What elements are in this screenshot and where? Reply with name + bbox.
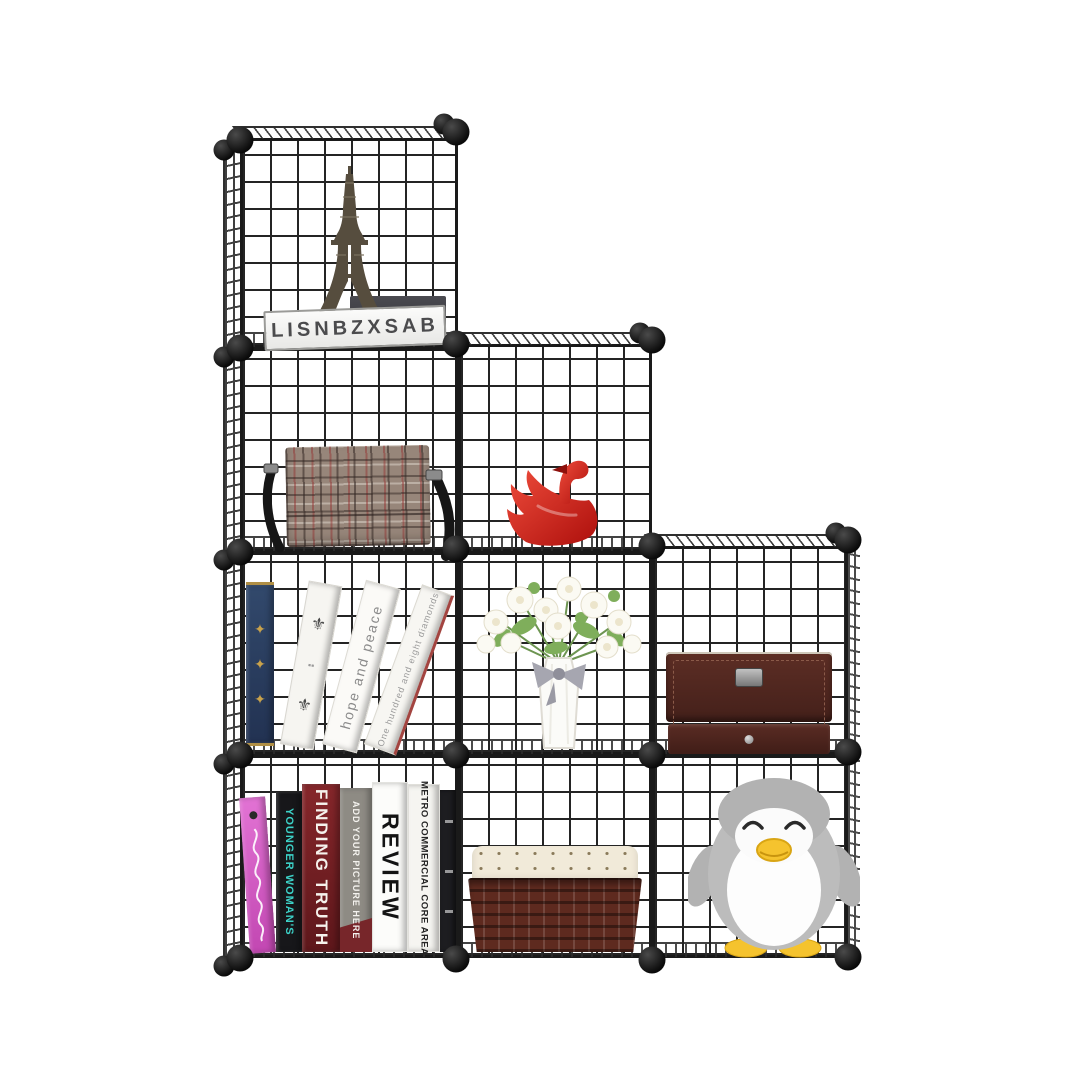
bag-strap [258, 452, 468, 582]
metro-book: METRO COMMERCIAL CORE AREA [408, 784, 440, 952]
jewelry-box-clasp [735, 668, 763, 687]
eagle-crest-icon: ⚜ [309, 614, 327, 636]
ornament-icon: ✦ [254, 621, 266, 638]
spine-mark [445, 870, 453, 873]
connector-ball [639, 742, 666, 769]
penguin-plush [688, 762, 860, 958]
spine-mark [445, 910, 453, 913]
blue-ornate-book: ✦ ✦ ✦ [246, 582, 274, 746]
connector-ball [227, 945, 254, 972]
leaning-books-group: ✦ ✦ ✦ ⚜ ▪▪ ⚜ hope and peace One hundred … [246, 578, 458, 750]
jewelry-box [666, 646, 832, 754]
basket-body [468, 878, 642, 952]
connector-ball [835, 739, 862, 766]
younger-womans-book: YOUNGER WOMAN'S [276, 792, 302, 952]
connector-ball [835, 944, 862, 971]
drawer-knob [745, 735, 754, 744]
review-book: REVIEW [372, 782, 408, 952]
metro-title: METRO COMMERCIAL CORE AREA [419, 781, 430, 956]
spine-mark [445, 820, 453, 823]
small-print: ▪▪ [307, 660, 315, 671]
wire-top-panel [450, 332, 650, 345]
connector-ball [227, 742, 254, 769]
wire-side-panel [223, 556, 240, 757]
wire-top-panel [644, 534, 846, 547]
finding-truth-title: FINDING TRUTH [311, 789, 331, 947]
wire-side-panel [223, 759, 240, 960]
wire-side-panel-right [848, 547, 860, 750]
flower-vase [466, 560, 652, 756]
book-row-group: YOUNGER WOMAN'S FINDING TRUTH ADD YOUR P… [250, 782, 456, 952]
wire-side-panel [223, 144, 240, 350]
nameplate-sign: LISNBZXSAB [263, 305, 446, 351]
connector-ball [443, 946, 470, 973]
red-swan-figurine [498, 446, 620, 550]
younger-womans-title: YOUNGER WOMAN'S [283, 808, 295, 936]
dark-end-book [440, 790, 456, 952]
connector-ball [639, 533, 666, 560]
connector-ball [835, 527, 862, 554]
connector-ball [443, 742, 470, 769]
connector-ball [227, 127, 254, 154]
connector-ball [639, 947, 666, 974]
wicker-basket [468, 846, 642, 952]
wire-side-panel [223, 352, 240, 554]
finding-truth-book: FINDING TRUTH [302, 784, 340, 952]
connector-ball [443, 331, 470, 358]
product-photo-scene: LISNBZXSAB ✦ ✦ ✦ [0, 0, 1080, 1080]
connector-ball [227, 335, 254, 362]
connector-ball [227, 539, 254, 566]
connector-ball [639, 327, 666, 354]
ornament-icon: ✦ [254, 656, 266, 673]
add-picture-title: ADD YOUR PICTURE HERE [351, 801, 361, 939]
review-title: REVIEW [377, 813, 404, 922]
nameplate-text: LISNBZXSAB [271, 314, 439, 343]
jewelry-box-drawer [668, 724, 830, 754]
eiffel-tower-figurine [302, 166, 398, 330]
connector-ball [443, 536, 470, 563]
wire-top-panel [232, 126, 456, 139]
eagle-crest-icon: ⚜ [295, 694, 313, 716]
add-picture-book: ADD YOUR PICTURE HERE [340, 788, 372, 952]
connector-ball [443, 119, 470, 146]
ornament-icon: ✦ [254, 691, 266, 708]
